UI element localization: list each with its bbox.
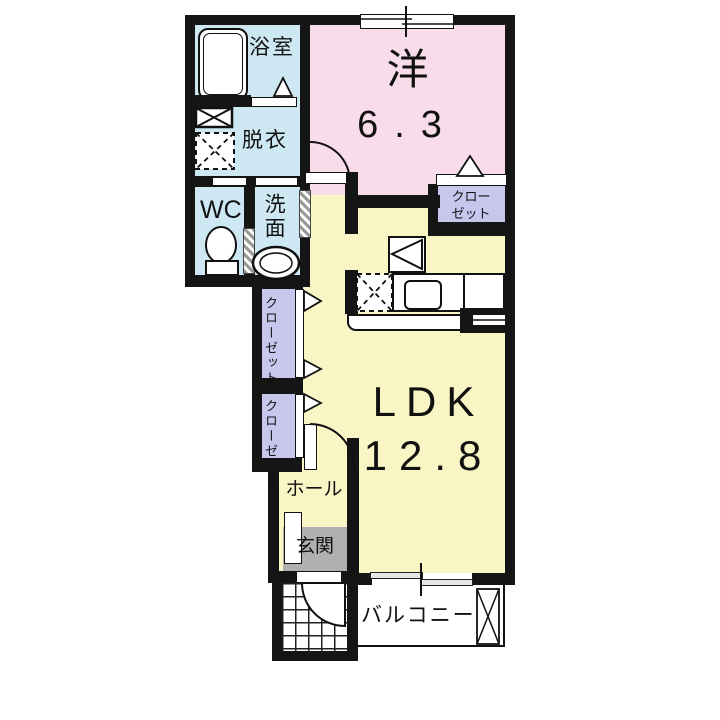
folding-door-triangle-bath (274, 78, 292, 96)
label-western-size: 6.3 (310, 104, 505, 148)
label-wc: WC (200, 196, 242, 225)
pipe-space-icon (196, 108, 232, 127)
label-hall: ホール (279, 479, 349, 501)
door-arc-entry (302, 583, 345, 626)
folding-door-triangle-closet-tr (457, 156, 483, 176)
label-dressing: 脱衣 (242, 129, 288, 153)
washing-machine-icon (196, 133, 234, 169)
stove-icon (357, 274, 392, 311)
label-washroom: 洗面 (261, 193, 285, 257)
door-arc-hall (310, 424, 354, 468)
folding-door-triangle-closet-a1 (304, 291, 321, 311)
label-ldk-size: 12.8 (352, 432, 505, 480)
label-western: 洋 (310, 46, 505, 94)
folding-door-triangle-closet-a2 (304, 360, 321, 378)
label-entrance: 玄関 (283, 536, 347, 558)
label-closet-b: クローゼット (263, 399, 278, 451)
label-closet-tr: クローゼット (447, 189, 495, 223)
folding-door-triangle-closet-b (304, 394, 321, 412)
partition-board-icon (477, 589, 499, 644)
door-arc-western (310, 142, 350, 182)
label-ldk: LDK (352, 378, 505, 426)
label-bathroom: 浴室 (249, 36, 295, 60)
label-balcony: バルコニー (361, 604, 476, 628)
refrigerator-triangle (392, 240, 422, 269)
toilet-icon (206, 227, 238, 275)
floor-plan: 浴室 脱衣 WC 洗面 洋 6.3 クローゼット クローゼット クローゼット L… (0, 0, 720, 720)
label-closet-a: クローゼット (263, 296, 278, 348)
